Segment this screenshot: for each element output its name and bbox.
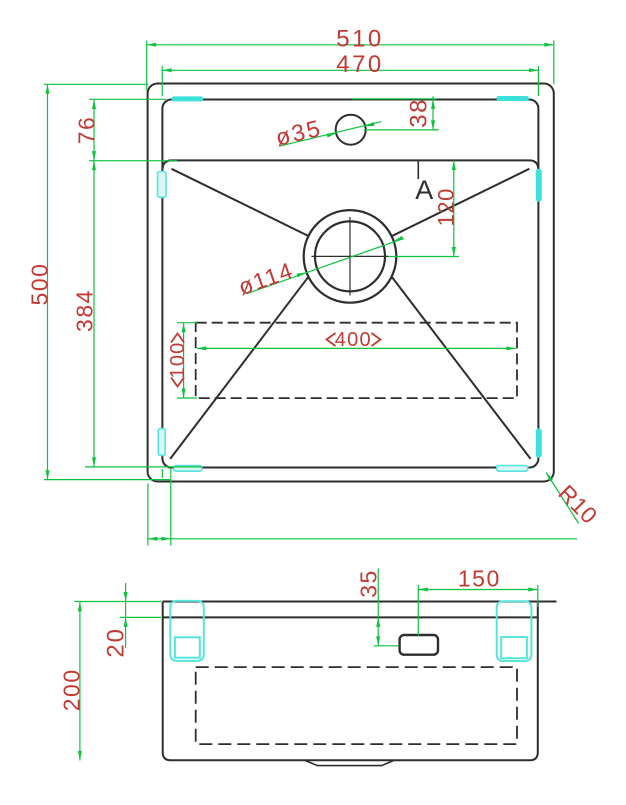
- svg-text:A: A: [415, 175, 433, 205]
- svg-text:400: 400: [335, 329, 372, 351]
- svg-text:150: 150: [458, 566, 501, 592]
- svg-text:ø114: ø114: [235, 257, 297, 300]
- svg-text:20: 20: [102, 627, 129, 658]
- svg-text:500: 500: [27, 263, 53, 306]
- svg-text:510: 510: [336, 26, 384, 53]
- svg-text:38: 38: [406, 98, 433, 128]
- svg-text:200: 200: [59, 668, 85, 711]
- svg-text:470: 470: [336, 51, 384, 78]
- svg-text:35: 35: [356, 569, 382, 598]
- svg-text:76: 76: [73, 116, 99, 145]
- svg-text:R10: R10: [554, 480, 603, 529]
- svg-text:ø35: ø35: [273, 115, 324, 151]
- svg-text:100: 100: [167, 342, 189, 379]
- svg-text:384: 384: [72, 289, 98, 332]
- svg-text:120: 120: [434, 188, 459, 226]
